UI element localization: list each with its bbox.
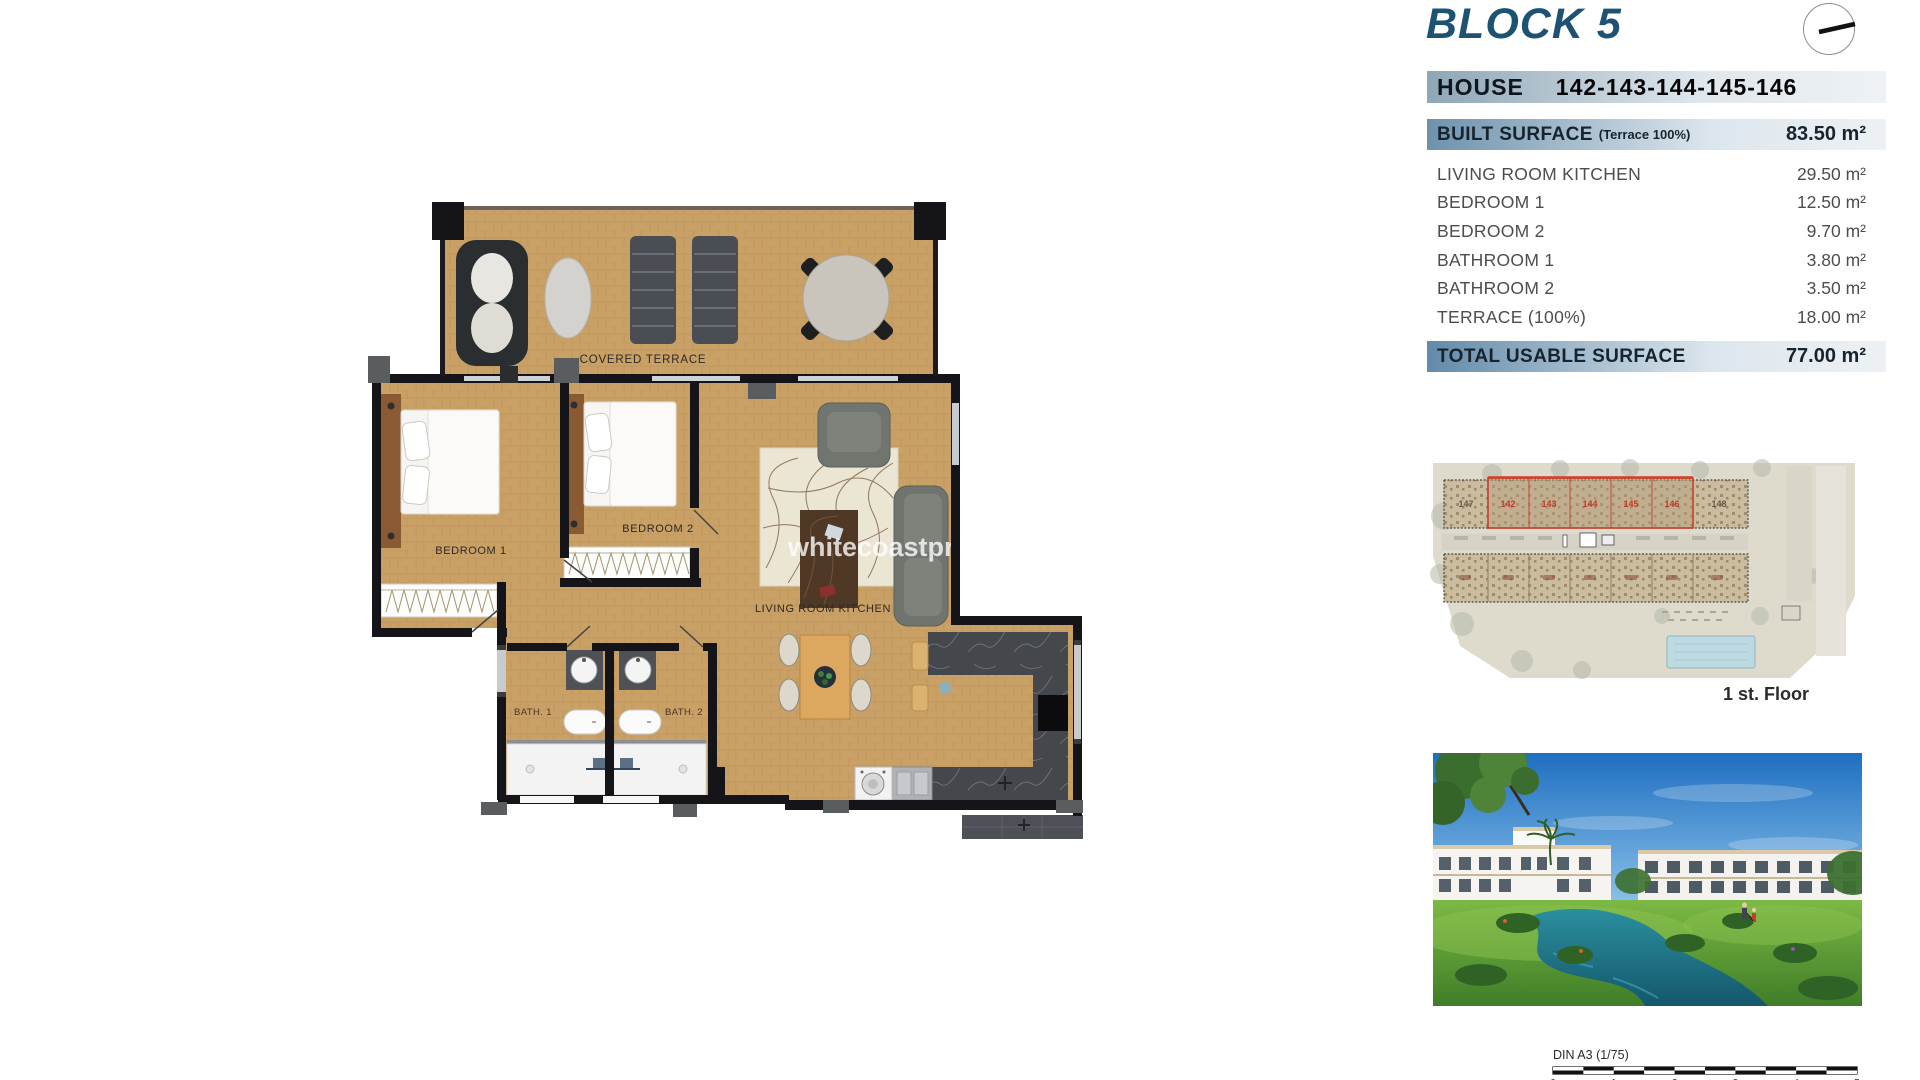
total-value: 77.00 m² [1786, 345, 1866, 368]
row-value: 9.70 m² [1807, 221, 1866, 242]
table-row: BEDROOM 1 12.50 m² [1427, 189, 1886, 218]
building-row-bottom [1444, 554, 1748, 602]
bedroom1-wardrobe [381, 584, 497, 617]
terrace-sofa [456, 240, 528, 366]
ruler-bar [1553, 1067, 1857, 1074]
total-label: TOTAL USABLE SURFACE [1437, 346, 1686, 368]
built-surface-note: (Terrace 100%) [1599, 127, 1691, 142]
unit-number-highlighted: 142 [1500, 499, 1515, 509]
pool [1667, 636, 1755, 668]
table-row: TERRACE (100%) 18.00 m² [1427, 303, 1886, 332]
central-road [1442, 533, 1748, 550]
unit-number: 147 [1458, 499, 1473, 509]
unit-number-highlighted: 145 [1623, 499, 1638, 509]
house-numbers: 142-143-144-145-146 [1556, 74, 1798, 101]
bedroom2-label: BEDROOM 2 [622, 523, 693, 535]
row-label: TERRACE (100%) [1437, 307, 1586, 328]
table-row: BATHROOM 1 3.80 m² [1427, 246, 1886, 275]
row-value: 12.50 m² [1797, 192, 1866, 213]
unit-number-highlighted: 144 [1582, 499, 1597, 509]
north-arrow-compass-icon [1798, 1, 1860, 59]
living-room-label: LIVING ROOM KITCHEN [755, 603, 891, 615]
unit-number-highlighted: 146 [1664, 499, 1679, 509]
kitchen-stool [912, 685, 928, 711]
scale-format-label: DIN A3 (1/75) [1553, 1048, 1629, 1062]
built-surface-label: BUILT SURFACE [1437, 124, 1593, 146]
bedroom1-label: BEDROOM 1 [435, 545, 506, 557]
golf-resort-photo [1433, 753, 1862, 1006]
kitchen-stool [912, 642, 928, 670]
row-label: LIVING ROOM KITCHEN [1437, 164, 1641, 185]
table-row: BATHROOM 2 3.50 m² [1427, 274, 1886, 303]
watermark-text: whitecoastpr [787, 532, 955, 562]
unit-number-highlighted: 143 [1541, 499, 1556, 509]
surface-rows: LIVING ROOM KITCHEN 29.50 m² BEDROOM 1 1… [1427, 160, 1886, 332]
covered-terrace-label: COVERED TERRACE [580, 354, 707, 366]
house-header-bar: HOUSE 142-143-144-145-146 [1427, 71, 1886, 103]
outdoor-patio-tiles [962, 815, 1083, 839]
building-row-top: 147 142 143 144 145 146 148 [1444, 476, 1748, 528]
row-value: 3.80 m² [1807, 250, 1866, 271]
unit-number: 148 [1711, 499, 1726, 509]
terrace-side-table [545, 258, 591, 338]
built-surface-bar: BUILT SURFACE (Terrace 100%) 83.50 m² [1427, 119, 1886, 150]
kitchen-sink [892, 767, 932, 800]
floor-plan-drawing: whitecoastpr [368, 198, 1110, 846]
row-label: BATHROOM 1 [1437, 250, 1554, 271]
living-armchair [818, 403, 890, 467]
site-plan-drawing: 147 142 143 144 145 146 148 [1430, 456, 1860, 708]
bath2-label: BATH. 2 [665, 707, 703, 718]
plan-sheet: whitecoastpr [0, 0, 1920, 1080]
built-surface-value: 83.50 m² [1786, 123, 1866, 146]
table-row: BEDROOM 2 9.70 m² [1427, 217, 1886, 246]
row-label: BEDROOM 2 [1437, 221, 1545, 242]
washing-machine [855, 767, 892, 800]
row-value: 18.00 m² [1797, 307, 1866, 328]
row-value: 29.50 m² [1797, 164, 1866, 185]
house-label: HOUSE [1437, 74, 1524, 101]
table-row: LIVING ROOM KITCHEN 29.50 m² [1427, 160, 1886, 189]
row-label: BEDROOM 1 [1437, 192, 1545, 213]
scale-ruler: 0 1 2 3 4 5 [1550, 1064, 1866, 1080]
terrace-dining-set [799, 255, 895, 342]
row-value: 3.50 m² [1807, 278, 1866, 299]
total-surface-bar: TOTAL USABLE SURFACE 77.00 m² [1427, 341, 1886, 372]
floor-level-label: 1 st. Floor [1723, 684, 1809, 705]
row-label: BATHROOM 2 [1437, 278, 1554, 299]
block-title: BLOCK 5 [1426, 0, 1622, 49]
bath1-label: BATH. 1 [514, 707, 552, 718]
